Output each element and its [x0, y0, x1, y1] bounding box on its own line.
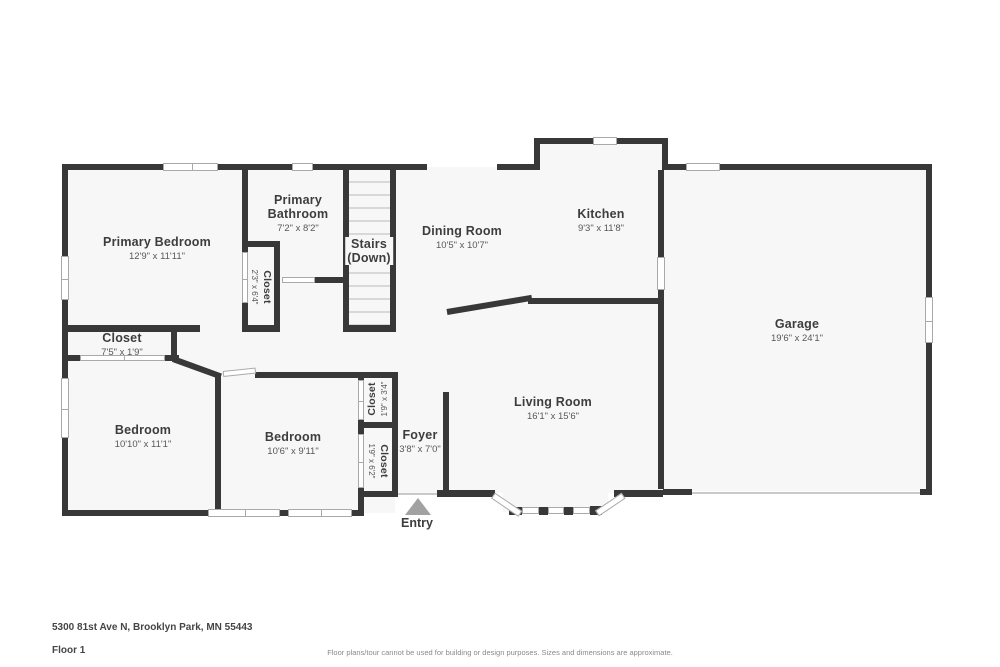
wall-segment: [280, 510, 288, 516]
window: [573, 507, 590, 514]
wall-segment: [218, 164, 292, 170]
room-label-top-closet: Closet 7'5" x 1'9": [101, 331, 143, 358]
sliding-door: [358, 380, 364, 420]
entry-arrow-icon: [405, 498, 431, 515]
room-label-bedroom-left: Bedroom 10'10" x 11'1": [115, 423, 172, 450]
footer-floor-label: Floor 1: [52, 645, 85, 656]
wall-segment: [668, 164, 686, 170]
door-threshold: [692, 492, 920, 494]
wall-segment: [926, 164, 932, 297]
wall-segment: [926, 343, 932, 495]
window: [288, 509, 352, 517]
window: [61, 378, 69, 438]
wall-segment: [392, 372, 398, 497]
room-label-stairs: Stairs (Down): [345, 237, 393, 265]
room-label-foyer-closet: Closet 1'9" x 6'2": [367, 444, 389, 479]
wall-segment: [658, 170, 664, 257]
wall-segment: [274, 241, 280, 332]
floor-area: [537, 141, 665, 169]
wall-segment: [343, 325, 396, 332]
wall-segment: [720, 164, 932, 170]
wall-segment: [564, 507, 573, 515]
door-threshold: [398, 493, 437, 495]
window: [593, 137, 617, 145]
wall-segment: [539, 507, 548, 515]
room-label-small-closet: Closet 1'9" x 3'4": [367, 382, 389, 417]
room-label-hall-closet: Closet 2'3" x 6'4": [250, 270, 272, 305]
window: [657, 257, 665, 290]
room-label-dining-room: Dining Room 10'5" x 10'7": [422, 224, 502, 251]
wall-segment: [242, 325, 280, 332]
wall-segment: [658, 290, 664, 489]
window: [925, 297, 933, 343]
wall-segment: [437, 490, 495, 497]
wall-segment: [62, 438, 68, 516]
wall-segment: [617, 138, 668, 144]
wall-segment: [255, 372, 364, 378]
wall-segment: [215, 374, 221, 516]
wall-segment: [920, 489, 932, 495]
wall-segment: [171, 332, 177, 358]
wall-segment: [534, 138, 593, 144]
wall-segment: [242, 170, 248, 252]
wall-segment: [358, 497, 364, 516]
footer-disclaimer: Floor plans/tour cannot be used for buil…: [327, 648, 673, 657]
room-label-kitchen: Kitchen 9'3" x 11'8": [577, 207, 624, 234]
wall-segment: [315, 277, 343, 283]
entry-label: Entry: [401, 516, 433, 530]
sliding-door: [282, 277, 315, 283]
wall-segment: [313, 164, 427, 170]
room-label-foyer: Foyer 3'8" x 7'0": [399, 428, 441, 455]
footer-address: 5300 81st Ave N, Brooklyn Park, MN 55443: [52, 622, 252, 633]
wall-segment: [443, 392, 449, 490]
window: [292, 163, 313, 171]
wall-segment: [62, 164, 68, 256]
window: [548, 507, 564, 514]
room-label-primary-bedroom: Primary Bedroom 12'9" x 11'11": [103, 235, 211, 262]
room-label-primary-bathroom: Primary Bathroom 7'2" x 8'2": [258, 193, 338, 234]
wall-segment: [62, 164, 163, 170]
wall-segment: [62, 300, 68, 378]
floor-plan-drawing: [0, 0, 1000, 667]
wall-segment: [358, 491, 398, 497]
window: [522, 507, 539, 514]
sliding-door: [358, 434, 364, 488]
window: [163, 163, 218, 171]
wall-segment: [497, 164, 537, 170]
wall-segment: [358, 372, 364, 380]
wall-segment: [528, 298, 658, 304]
window: [61, 256, 69, 300]
floor-plan-page: Primary Bedroom 12'9" x 11'11" Primary B…: [0, 0, 1000, 667]
sliding-door: [242, 252, 248, 303]
wall-segment: [663, 489, 692, 495]
window: [208, 509, 280, 517]
room-label-bedroom-right: Bedroom 10'6" x 9'11": [265, 430, 321, 457]
window: [686, 163, 720, 171]
room-label-garage: Garage 19'6" x 24'1": [771, 317, 823, 344]
wall-segment: [62, 355, 80, 361]
room-label-living-room: Living Room 16'1" x 15'6": [514, 395, 592, 422]
wall-segment: [62, 510, 208, 516]
